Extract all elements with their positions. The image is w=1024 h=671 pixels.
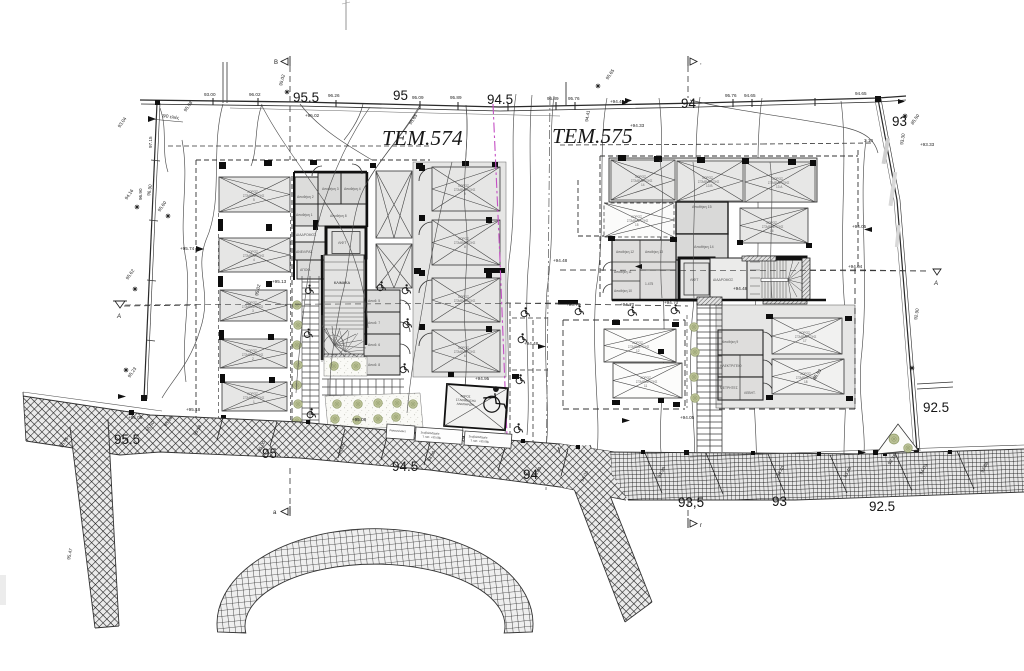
svg-text:15: 15 — [635, 223, 639, 227]
svg-text:17: 17 — [803, 339, 807, 343]
svg-text:93.00: 93.00 — [204, 92, 216, 97]
svg-text:95: 95 — [393, 88, 408, 103]
svg-text:ΛΙΦΤ: ΛΙΦΤ — [338, 241, 347, 245]
svg-text:Αποθήκη 9: Αποθήκη 9 — [722, 340, 738, 344]
svg-text:94.5: 94.5 — [487, 92, 513, 107]
svg-text:95.09: 95.09 — [412, 95, 424, 100]
svg-text:Αποθήκη 12: Αποθήκη 12 — [616, 250, 634, 254]
svg-text:3: 3 — [252, 309, 254, 313]
svg-text:Αποθήκη 11: Αποθήκη 11 — [614, 270, 632, 274]
svg-text:ΔΙΑΔΡΟΜΟΣ: ΔΙΑΔΡΟΜΟΣ — [713, 278, 733, 282]
svg-text:+94.70: +94.70 — [566, 302, 581, 307]
svg-text:94.65: 94.65 — [855, 91, 867, 96]
svg-text:92.5: 92.5 — [869, 499, 895, 514]
svg-text:+94.05: +94.05 — [680, 415, 695, 420]
svg-text:94.65: 94.65 — [744, 93, 756, 98]
svg-text:8: 8 — [464, 245, 466, 249]
svg-text:r: r — [700, 523, 702, 529]
svg-text:18: 18 — [804, 380, 808, 384]
svg-text:93: 93 — [892, 114, 907, 129]
svg-text:+94.95: +94.95 — [475, 376, 490, 381]
svg-text:ΚΛΙΜΑΚΑ: ΚΛΙΜΑΚΑ — [334, 281, 351, 285]
svg-text:+95.02: +95.02 — [305, 113, 320, 118]
svg-text:+94.70: +94.70 — [664, 300, 679, 305]
svg-text:A: A — [933, 281, 938, 287]
svg-text:+94.04: +94.04 — [848, 264, 863, 269]
svg-text:+94.48: +94.48 — [524, 341, 539, 346]
svg-text:ΗΛΕΚΤΡ/ΓΕΙΟ: ΗΛΕΚΤΡ/ΓΕΙΟ — [720, 364, 742, 368]
svg-text:94.5: 94.5 — [392, 459, 418, 474]
svg-text:+94.48: +94.48 — [733, 286, 748, 291]
svg-text:95.76: 95.76 — [568, 96, 580, 101]
svg-text:94: 94 — [523, 467, 538, 482]
svg-text:+93.33: +93.33 — [920, 142, 935, 147]
svg-text:A: A — [116, 314, 121, 320]
svg-text:Αποθήκη 14: Αποθήκη 14 — [694, 245, 714, 249]
svg-text:96.02: 96.02 — [249, 92, 261, 97]
svg-text:Αποθήκη 10: Αποθήκη 10 — [614, 289, 632, 293]
svg-text:92.5: 92.5 — [923, 400, 949, 415]
svg-text:94: 94 — [681, 96, 696, 111]
svg-text:14: 14 — [641, 183, 645, 187]
svg-text:+95.08: +95.08 — [352, 417, 367, 422]
svg-text:Αποθ. 8: Αποθ. 8 — [368, 363, 380, 367]
svg-text:1.475: 1.475 — [645, 282, 653, 286]
svg-text:TEM.574: TEM.574 — [382, 126, 463, 150]
svg-text:+95.74: +95.74 — [180, 246, 195, 251]
svg-text:9: 9 — [464, 192, 466, 196]
svg-text:13 Α: 13 Α — [776, 185, 783, 189]
svg-text:16: 16 — [770, 229, 774, 233]
svg-text:93: 93 — [772, 494, 787, 509]
svg-text:1: 1 — [253, 400, 255, 404]
svg-text:ΔΙΑΔΡΟΜΟΣ: ΔΙΑΔΡΟΜΟΣ — [296, 233, 316, 237]
svg-text:96.90: 96.90 — [138, 188, 143, 200]
svg-text:Αποθήκη 13: Αποθήκη 13 — [645, 250, 663, 254]
svg-text:TEM.575: TEM.575 — [552, 124, 633, 148]
svg-text:+95.13: +95.13 — [272, 279, 287, 284]
svg-text:ΜΕΤΡΗΤΕΣ: ΜΕΤΡΗΤΕΣ — [720, 386, 738, 390]
svg-text:2: 2 — [252, 357, 254, 361]
svg-text:3.10: 3.10 — [864, 138, 873, 143]
svg-text:97.15: 97.15 — [148, 136, 153, 148]
svg-text:95.5: 95.5 — [293, 90, 319, 105]
svg-text:4: 4 — [253, 258, 255, 262]
svg-text:+94.05: +94.05 — [852, 224, 867, 229]
svg-text:ΛΙΦΤ: ΛΙΦΤ — [690, 278, 699, 282]
svg-text:+95.08: +95.08 — [128, 415, 143, 420]
svg-text:Αποθήκη 15: Αποθήκη 15 — [692, 205, 712, 209]
svg-text:Αποθήκη 2: Αποθήκη 2 — [297, 195, 314, 199]
svg-text:95.5: 95.5 — [114, 432, 140, 447]
svg-text:Αποθήκη 1: Αποθήκη 1 — [296, 213, 313, 217]
svg-text:13 Β: 13 Β — [706, 184, 713, 188]
svg-text:6: 6 — [464, 354, 466, 358]
svg-text:95: 95 — [262, 446, 277, 461]
svg-text:Αποθήκη 4: Αποθήκη 4 — [344, 187, 361, 191]
svg-text:Αποθ. 7: Αποθ. 7 — [368, 321, 380, 325]
svg-text:Αποθήκη 3: Αποθήκη 3 — [322, 187, 339, 191]
svg-text:95.76: 95.76 — [725, 93, 737, 98]
svg-text:+95.18: +95.18 — [186, 407, 201, 412]
svg-text:ΛΕΒΗΤ.: ΛΕΒΗΤ. — [744, 391, 756, 395]
svg-text:+94.48: +94.48 — [553, 258, 568, 263]
svg-text:Αποθ. 6: Αποθ. 6 — [368, 343, 380, 347]
svg-text:95.89: 95.89 — [450, 95, 462, 100]
svg-text:12: 12 — [636, 349, 640, 353]
svg-text:B: B — [274, 60, 278, 66]
svg-text:93,5: 93,5 — [678, 495, 704, 510]
svg-text:11: 11 — [644, 384, 648, 388]
svg-text:5: 5 — [253, 198, 255, 202]
svg-text:96.26: 96.26 — [328, 93, 340, 98]
svg-text:+94.45: +94.45 — [610, 99, 625, 104]
svg-text:+94.70: +94.70 — [620, 302, 635, 307]
svg-text:ΑΝΕΛ/ΡΑΣ: ΑΝΕΛ/ΡΑΣ — [296, 250, 313, 254]
svg-text:Αποθ. 5: Αποθ. 5 — [368, 299, 380, 303]
svg-text:95.89: 95.89 — [547, 96, 559, 101]
svg-text:+94.33: +94.33 — [630, 123, 645, 128]
